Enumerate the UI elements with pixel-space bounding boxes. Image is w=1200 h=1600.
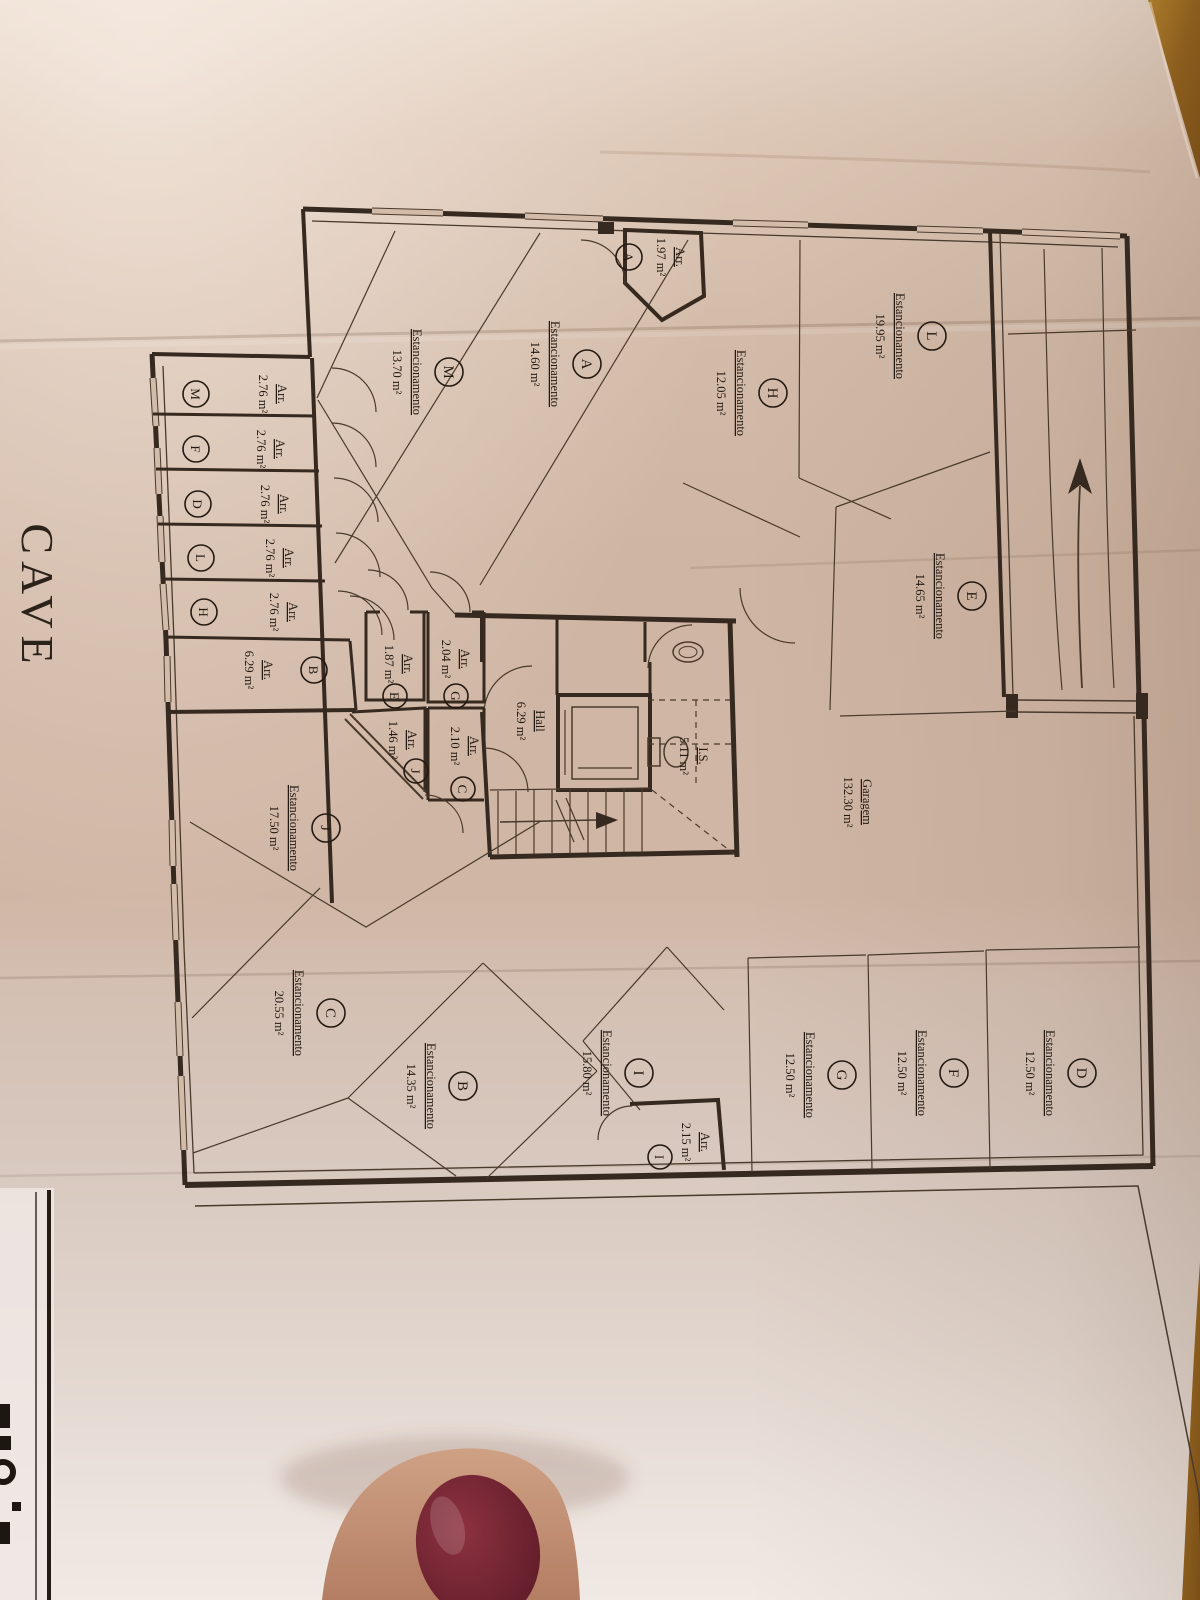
svg-text:2.04 m²: 2.04 m² (439, 640, 453, 679)
svg-text:12.50 m²: 12.50 m² (783, 1053, 797, 1098)
svg-text:C: C (455, 785, 470, 794)
svg-text:1.87 m²: 1.87 m² (382, 645, 396, 684)
ramp (990, 232, 1148, 719)
storage-label-F: Arr.2.76 m² F (183, 430, 287, 469)
svg-text:M: M (440, 365, 456, 378)
svg-text:2.15 m²: 2.15 m² (679, 1123, 693, 1162)
svg-text:Estancionamento: Estancionamento (893, 293, 907, 379)
svg-text:B: B (454, 1081, 470, 1091)
svg-text:2.76 m²: 2.76 m² (256, 375, 270, 414)
garage-label: Garagem132.30 m² (841, 777, 874, 828)
core-storages (345, 570, 528, 833)
svg-text:14.35 m²: 14.35 m² (404, 1064, 418, 1109)
svg-text:2.76 m²: 2.76 m² (258, 485, 272, 524)
storage-label-C: Arr.2.10 m² C (448, 727, 481, 801)
svg-text:15.80 m²: 15.80 m² (580, 1051, 594, 1096)
svg-text:Estancionamento: Estancionamento (410, 329, 424, 415)
svg-text:Garagem: Garagem (860, 779, 874, 825)
svg-text:6.29 m²: 6.29 m² (242, 651, 256, 690)
svg-text:14.65 m²: 14.65 m² (913, 574, 927, 619)
svg-text:19.95 m²: 19.95 m² (873, 314, 887, 359)
svg-text:I: I (630, 1071, 646, 1076)
parking-space-label-C: C Estancionamento20.55 m² (272, 970, 345, 1056)
svg-text:2.76 m²: 2.76 m² (254, 430, 268, 469)
parking-space-label-H: H Estancionamento12.05 m² (714, 350, 787, 436)
svg-text:H: H (764, 388, 780, 399)
storage-label-I: Arr.2.15 m² I (648, 1123, 712, 1169)
svg-text:A: A (621, 252, 636, 262)
svg-text:L: L (923, 331, 939, 340)
svg-text:C: C (322, 1008, 338, 1018)
svg-text:Estancionamento: Estancionamento (803, 1032, 817, 1118)
svg-text:Estancionamento: Estancionamento (424, 1043, 438, 1129)
wood-table-edge (1148, 0, 1200, 1600)
svg-text:D: D (1073, 1068, 1089, 1079)
svg-text:Arr.: Arr. (467, 736, 481, 756)
parking-space-label-F: F Estancionamento12.50 m² (895, 1030, 968, 1116)
svg-text:Arr.: Arr. (698, 1132, 712, 1152)
svg-text:14.60 m²: 14.60 m² (528, 342, 542, 387)
hall-label: Hall6.29 m² (514, 702, 547, 741)
headroom-dashed-lines (648, 700, 734, 854)
svg-text:H: H (196, 607, 211, 616)
svg-text:Estancionamento: Estancionamento (600, 1030, 614, 1116)
svg-text:J: J (317, 825, 333, 831)
wc-label: I.S.5.11 m² (677, 737, 710, 775)
svg-text:Arr.: Arr. (401, 654, 415, 674)
sink (673, 642, 703, 662)
svg-text:Estancionamento: Estancionamento (734, 350, 748, 436)
svg-text:G: G (833, 1070, 849, 1081)
storage-label-G: Arr.2.04 m² G (439, 640, 472, 708)
svg-text:Estancionamento: Estancionamento (1043, 1030, 1057, 1116)
storage-label-H: Arr.2.76 m² H (191, 593, 300, 632)
svg-text:Arr.: Arr. (673, 247, 687, 267)
sheet-title: CAVE (12, 523, 63, 670)
svg-text:A: A (578, 359, 594, 370)
photo-of-floor-plan: L Estancionamento19.95 m² H Estancioname… (0, 0, 1200, 1600)
svg-text:5.11 m²: 5.11 m² (677, 737, 691, 775)
svg-text:Arr.: Arr. (273, 439, 287, 459)
ramp-arrow-shaft (1078, 486, 1082, 688)
svg-text:12.05 m²: 12.05 m² (714, 371, 728, 416)
svg-text:Arr.: Arr. (277, 494, 291, 514)
storage-label-M: Arr.2.76 m² M (183, 375, 289, 414)
svg-text:Estancionamento: Estancionamento (915, 1030, 929, 1116)
svg-text:12.50 m²: 12.50 m² (895, 1051, 909, 1096)
svg-text:F: F (188, 445, 203, 452)
floor-plan-drawing: L Estancionamento19.95 m² H Estancioname… (0, 0, 1200, 1600)
svg-text:Arr.: Arr. (286, 602, 300, 622)
svg-text:Arr.: Arr. (261, 660, 275, 680)
parking-space-label-G: G Estancionamento12.50 m² (783, 1032, 856, 1118)
upper-stall-lines (317, 231, 1016, 716)
svg-text:I.S.: I.S. (696, 747, 710, 764)
stairs (490, 788, 650, 854)
svg-text:CAVE: CAVE (12, 523, 63, 670)
svg-text:132.30 m²: 132.30 m² (841, 777, 855, 828)
underlying-sheet (0, 1188, 54, 1600)
garage-door-sill (1016, 700, 1142, 713)
svg-text:12.50 m²: 12.50 m² (1023, 1051, 1037, 1096)
svg-text:Arr.: Arr. (275, 384, 289, 404)
finger (280, 1436, 630, 1600)
svg-text:6.29 m²: 6.29 m² (514, 702, 528, 741)
svg-text:2.76 m²: 2.76 m² (267, 593, 281, 632)
svg-text:Estancionamento: Estancionamento (292, 970, 306, 1056)
svg-text:20.55 m²: 20.55 m² (272, 991, 286, 1036)
svg-text:E: E (387, 692, 402, 700)
core-block (455, 588, 795, 857)
storage-label-D: Arr.2.76 m² D (185, 485, 291, 524)
svg-text:Estancionamento: Estancionamento (548, 321, 562, 407)
svg-text:1.97 m²: 1.97 m² (654, 238, 668, 277)
svg-text:M: M (188, 388, 203, 400)
svg-text:D: D (190, 499, 205, 508)
svg-text:Estancionamento: Estancionamento (287, 785, 301, 871)
svg-text:Estancionamento: Estancionamento (933, 553, 947, 639)
parking-space-label-L: L Estancionamento19.95 m² (873, 293, 946, 379)
svg-text:F: F (945, 1069, 961, 1077)
svg-text:I: I (652, 1155, 667, 1159)
parking-space-label-D: D Estancionamento12.50 m² (1023, 1030, 1096, 1116)
svg-text:G: G (448, 691, 463, 700)
svg-text:E: E (963, 591, 979, 600)
svg-text:Arr.: Arr. (405, 730, 419, 750)
svg-text:Hall: Hall (533, 710, 547, 732)
svg-text:2.76 m²: 2.76 m² (263, 539, 277, 578)
svg-text:17.50 m²: 17.50 m² (267, 806, 281, 851)
stairs-direction-arrow (596, 812, 618, 829)
storage-label-B: B Arr.6.29 m² (242, 651, 327, 690)
parking-space-label-E: E Estancionamento14.65 m² (913, 553, 986, 639)
svg-text:Arr.: Arr. (282, 548, 296, 568)
svg-text:1.46 m²: 1.46 m² (386, 721, 400, 760)
svg-text:13.70 m²: 13.70 m² (390, 350, 404, 395)
storage-A-room (581, 222, 704, 320)
svg-text:L: L (193, 554, 208, 562)
parking-space-label-M: M Estancionamento13.70 m² (390, 329, 463, 415)
storage-label-L: Arr.2.76 m² L (188, 539, 296, 578)
svg-text:2.10 m²: 2.10 m² (448, 727, 462, 766)
svg-text:J: J (408, 768, 423, 773)
parking-space-label-B: B Estancionamento14.35 m² (404, 1043, 477, 1129)
svg-text:Arr.: Arr. (458, 649, 472, 669)
svg-text:B: B (306, 666, 321, 675)
